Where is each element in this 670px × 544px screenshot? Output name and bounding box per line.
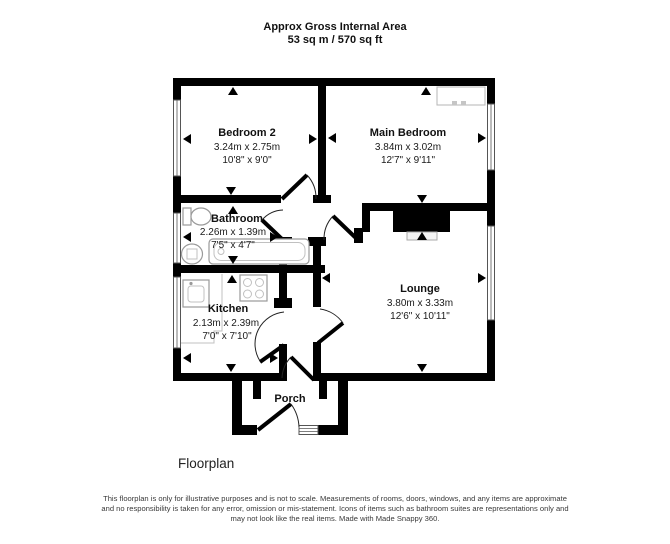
room-porch: Porch bbox=[274, 393, 305, 405]
wall-bedroom-divider bbox=[318, 86, 326, 203]
main-bedroom-metric: 3.84m x 3.02m bbox=[375, 142, 441, 153]
floorplan-canvas: Approx Gross Internal Area 53 sq m / 570… bbox=[0, 0, 670, 544]
wall-kitchen-east-cap bbox=[274, 298, 292, 308]
bathroom-imperial: 7'5" x 4'7" bbox=[211, 240, 255, 251]
wall-bottom-right bbox=[315, 373, 495, 381]
room-lounge: Lounge 3.80m x 3.33m 12'6" x 10'11" bbox=[387, 283, 453, 322]
porch-jamb-left bbox=[253, 381, 261, 399]
main-bedroom-name: Main Bedroom bbox=[370, 127, 447, 139]
bathroom-metric: 2.26m x 1.39m bbox=[200, 227, 266, 238]
porch-window bbox=[299, 426, 318, 435]
floorplan-page: Approx Gross Internal Area 53 sq m / 570… bbox=[0, 0, 670, 544]
arrows-bedroom2 bbox=[183, 87, 317, 195]
gross-area-value: 53 sq m / 570 sq ft bbox=[288, 34, 383, 46]
wall-bedroom2-south bbox=[181, 195, 281, 203]
room-bedroom2: Bedroom 2 3.24m x 2.75m 10'8" x 9'0" bbox=[214, 127, 280, 166]
window-main-bedroom bbox=[488, 104, 495, 170]
main-bedroom-imperial: 12'7" x 9'11" bbox=[381, 155, 436, 166]
main-bedroom-fixtures bbox=[437, 87, 485, 105]
wall-mainbedroom-door-stub bbox=[362, 203, 370, 232]
door-bedroom2 bbox=[282, 175, 316, 199]
lounge-metric: 3.80m x 3.33m bbox=[387, 298, 453, 309]
bedroom2-metric: 3.24m x 2.75m bbox=[214, 142, 280, 153]
gross-area-title: Approx Gross Internal Area bbox=[263, 21, 407, 33]
porch-wall-bottom-b bbox=[318, 425, 348, 435]
wall-mainbedroom-south bbox=[362, 203, 487, 211]
kitchen-name: Kitchen bbox=[208, 303, 249, 315]
porch-jamb-right bbox=[319, 381, 327, 399]
door-lounge bbox=[318, 309, 343, 343]
window-bathroom bbox=[174, 213, 181, 263]
toilet-icon bbox=[183, 208, 211, 225]
hob-icon bbox=[240, 275, 267, 301]
lounge-name: Lounge bbox=[400, 283, 440, 295]
lounge-imperial: 12'6" x 10'11" bbox=[390, 311, 450, 322]
door-main-bedroom bbox=[324, 216, 358, 240]
wardrobe-icon bbox=[437, 87, 485, 105]
kitchen-metric: 2.13m x 2.39m bbox=[193, 318, 259, 329]
bathroom-name: Bathroom bbox=[211, 213, 263, 225]
wall-lounge-west-cap bbox=[308, 237, 326, 246]
sink-icon bbox=[182, 244, 203, 264]
window-lounge bbox=[488, 226, 495, 320]
bedroom2-imperial: 10'8" x 9'0" bbox=[222, 155, 272, 166]
window-bedroom2 bbox=[174, 100, 181, 176]
kitchen-sink-icon bbox=[183, 280, 209, 307]
wall-bathroom-kitchen-divider bbox=[181, 265, 325, 273]
wall-top bbox=[173, 78, 495, 86]
disclaimer-line1: This floorplan is only for illustrative … bbox=[103, 494, 567, 503]
porch-wall-bottom-a bbox=[232, 425, 257, 435]
kitchen-imperial: 7'0" x 7'10" bbox=[202, 331, 252, 342]
header: Approx Gross Internal Area 53 sq m / 570… bbox=[263, 21, 407, 46]
room-main-bedroom: Main Bedroom 3.84m x 3.02m 12'7" x 9'11" bbox=[370, 127, 447, 166]
disclaimer-line2: and no responsibility is taken for any e… bbox=[101, 504, 568, 513]
bedroom2-name: Bedroom 2 bbox=[218, 127, 275, 139]
door-porch-front bbox=[258, 404, 299, 430]
wall-lounge-west-upper bbox=[313, 246, 321, 307]
porch-walls bbox=[232, 381, 348, 435]
floorplan-caption: Floorplan bbox=[178, 456, 234, 471]
window-kitchen bbox=[174, 277, 181, 348]
wall-bottom-left bbox=[173, 373, 287, 381]
porch-name: Porch bbox=[274, 393, 305, 405]
disclaimer: This floorplan is only for illustrative … bbox=[101, 494, 568, 523]
room-kitchen: Kitchen 2.13m x 2.39m 7'0" x 7'10" bbox=[193, 303, 259, 342]
disclaimer-line3: may not look like the real items. Made w… bbox=[231, 514, 440, 523]
chimney-breast bbox=[393, 211, 450, 232]
wall-lounge-west-lower bbox=[313, 342, 321, 381]
